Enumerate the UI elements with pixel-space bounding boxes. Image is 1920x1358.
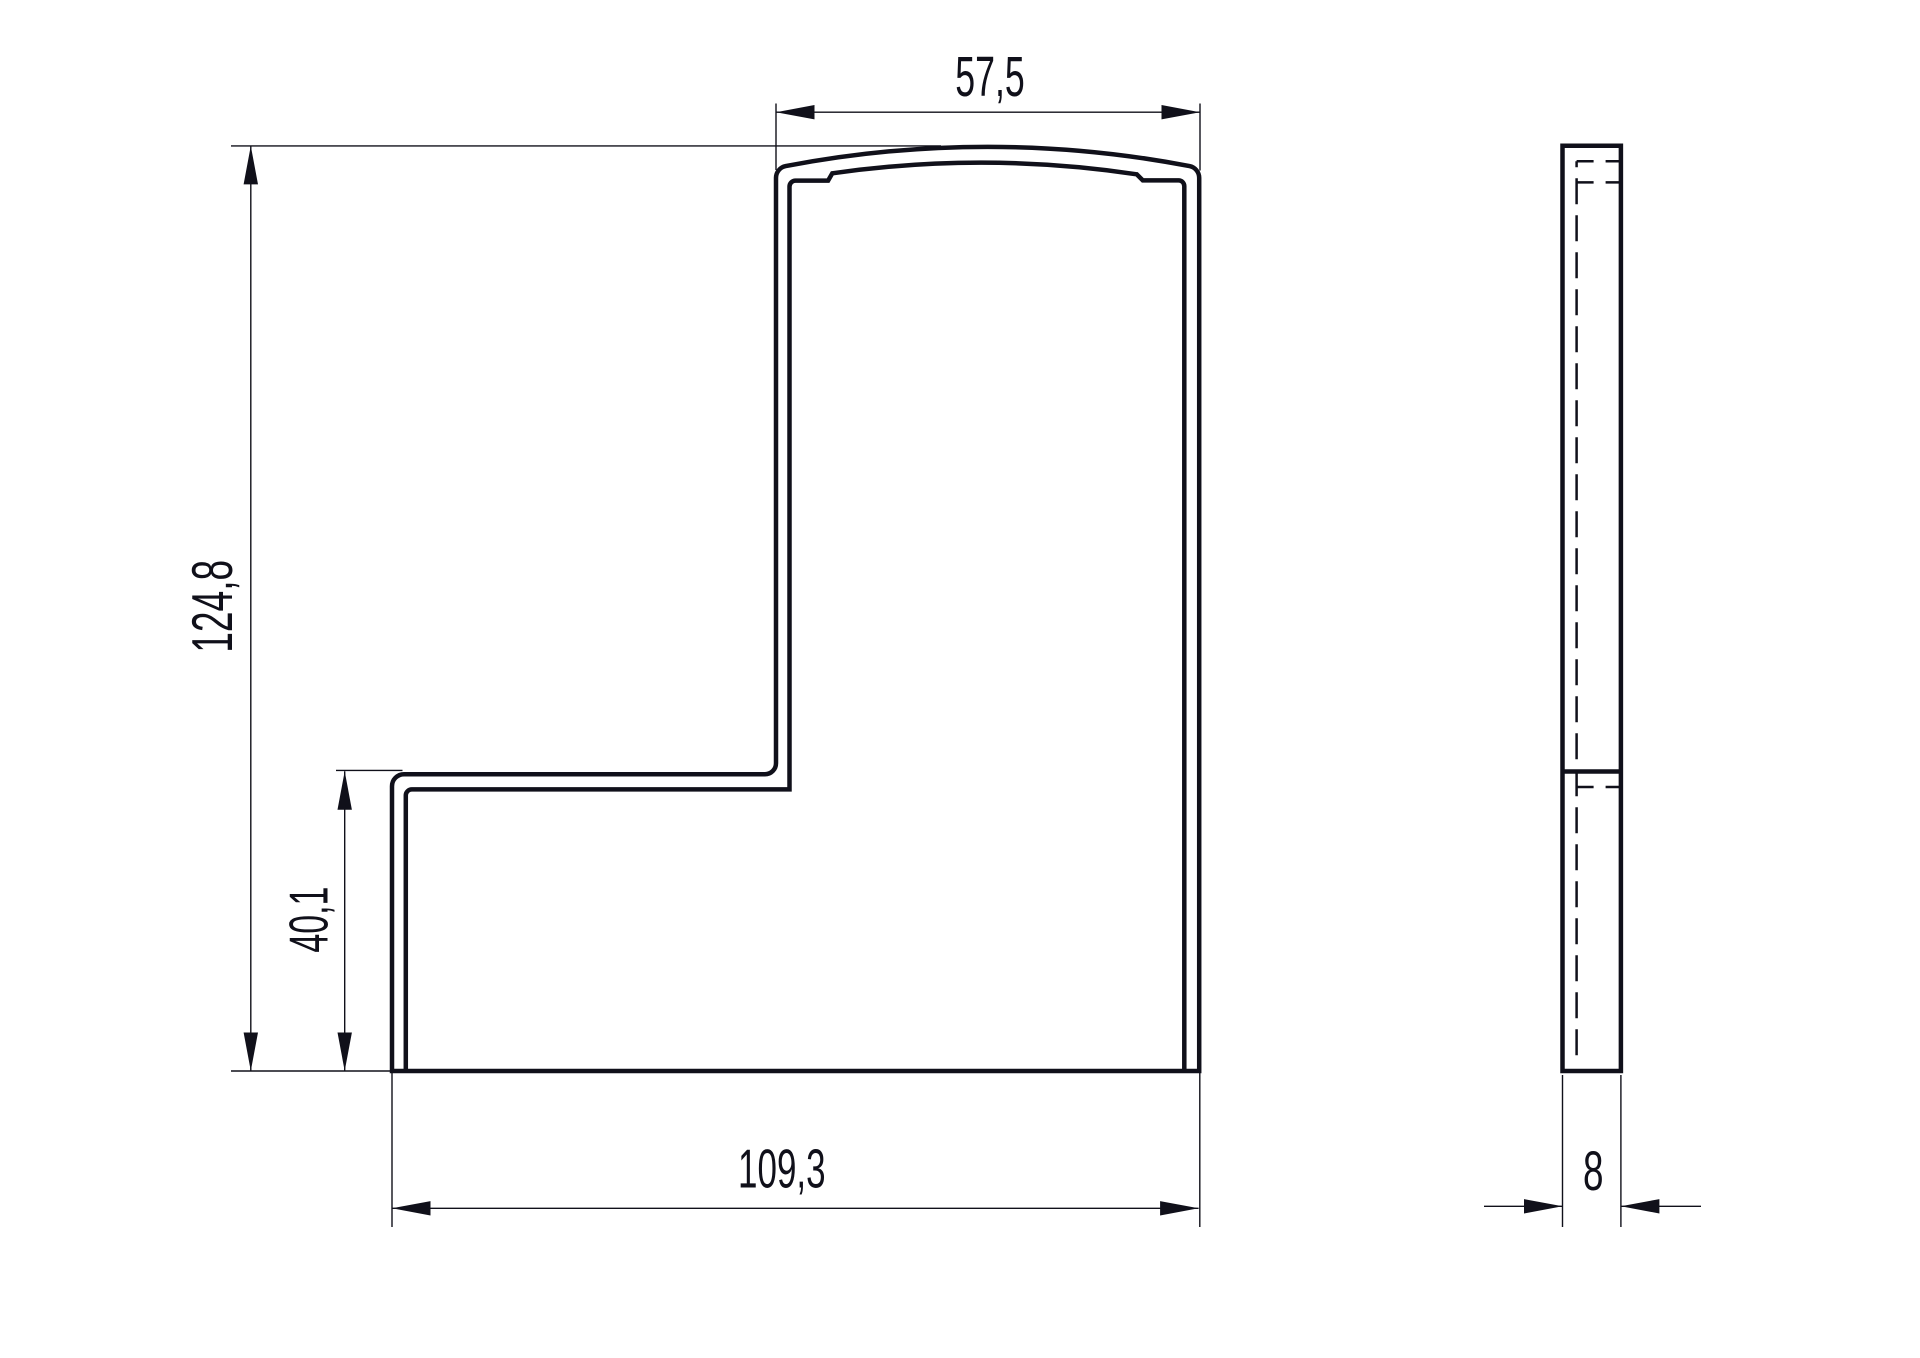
svg-text:124,8: 124,8 [181,560,245,653]
svg-text:109,3: 109,3 [738,1138,826,1200]
svg-text:40,1: 40,1 [279,887,340,953]
svg-text:8: 8 [1583,1139,1604,1202]
svg-text:57,5: 57,5 [955,45,1025,108]
